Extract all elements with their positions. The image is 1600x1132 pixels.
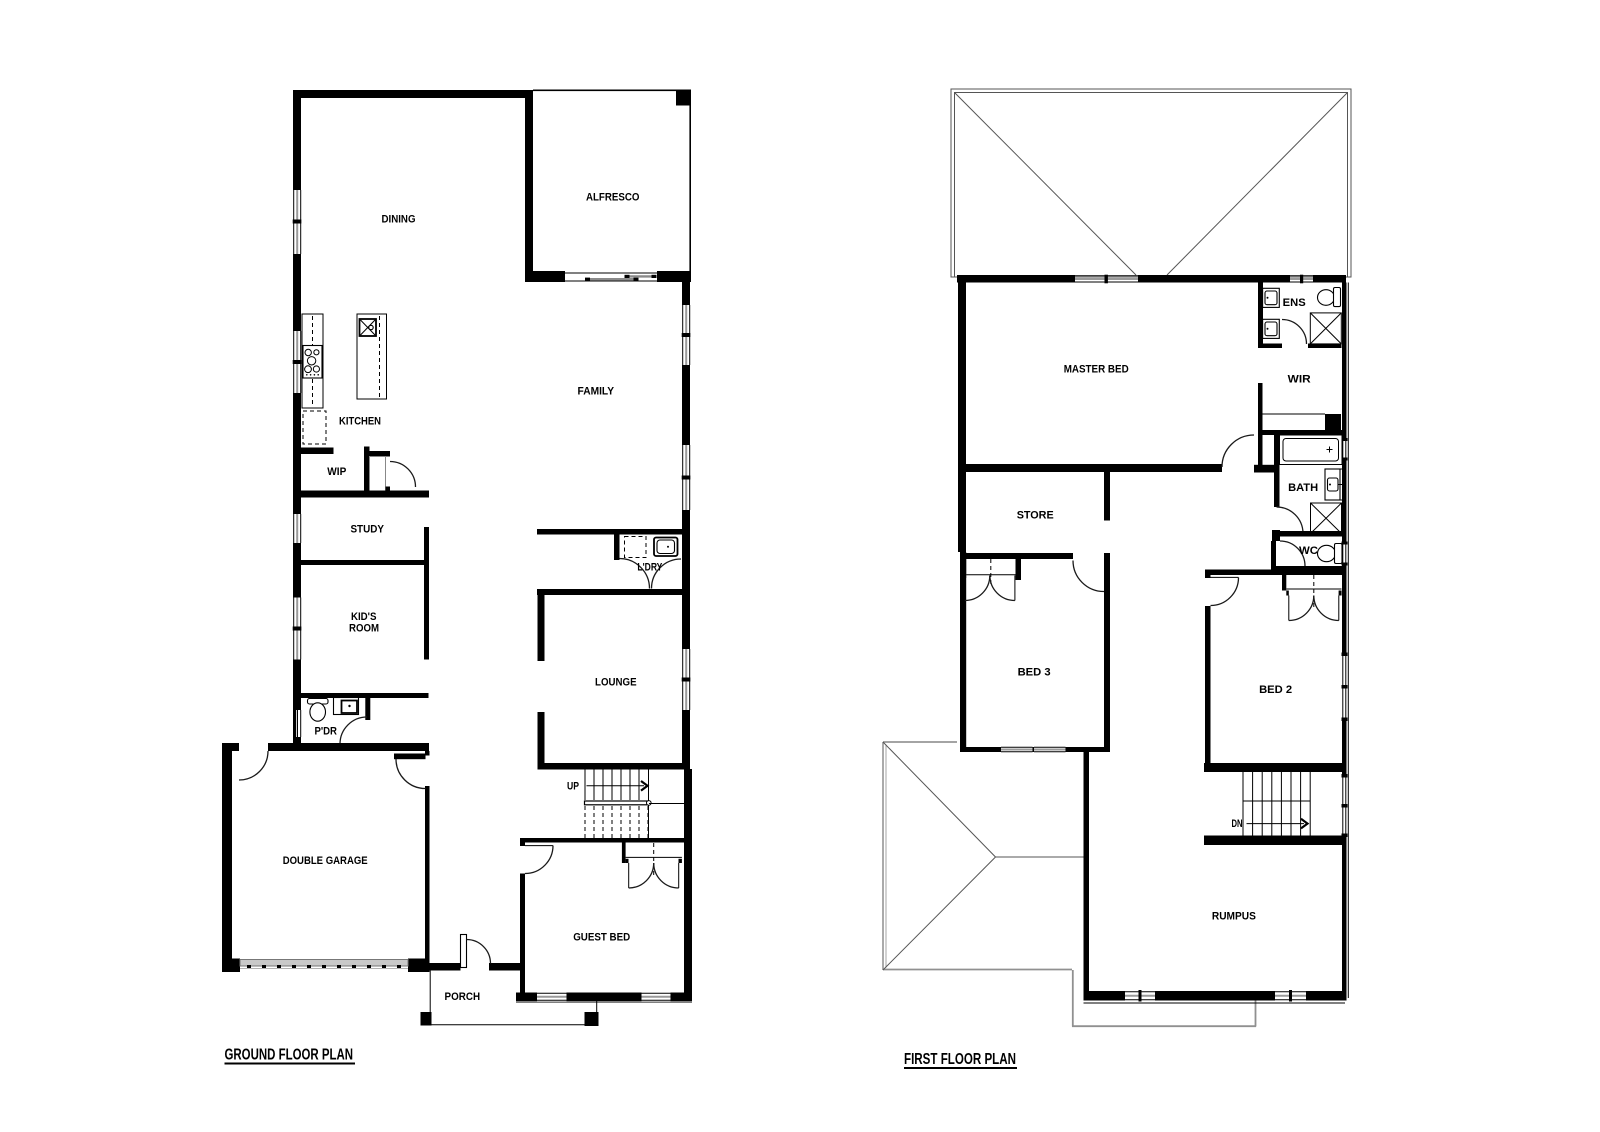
svg-text:RUMPUS: RUMPUS bbox=[1212, 911, 1256, 923]
svg-text:DOUBLE GARAGE: DOUBLE GARAGE bbox=[283, 855, 368, 867]
svg-text:BED 3: BED 3 bbox=[1018, 667, 1051, 679]
svg-text:LOUNGE: LOUNGE bbox=[595, 677, 637, 689]
svg-text:KID'S: KID'S bbox=[351, 611, 377, 623]
svg-text:MASTER BED: MASTER BED bbox=[1064, 364, 1129, 376]
svg-text:WC: WC bbox=[1299, 545, 1318, 557]
svg-text:PORCH: PORCH bbox=[445, 991, 481, 1003]
svg-text:FAMILY: FAMILY bbox=[578, 386, 615, 398]
svg-text:ROOM: ROOM bbox=[349, 623, 379, 635]
svg-text:L'DRY: L'DRY bbox=[637, 562, 663, 574]
svg-text:WIP: WIP bbox=[327, 466, 346, 478]
svg-text:P'DR: P'DR bbox=[314, 726, 337, 738]
svg-text:WIR: WIR bbox=[1288, 374, 1311, 386]
svg-text:GUEST BED: GUEST BED bbox=[573, 932, 630, 944]
svg-text:UP: UP bbox=[567, 781, 579, 793]
svg-text:GROUND FLOOR PLAN: GROUND FLOOR PLAN bbox=[225, 1047, 354, 1064]
svg-text:DN: DN bbox=[1232, 818, 1243, 830]
svg-text:BATH: BATH bbox=[1288, 482, 1318, 494]
svg-text:FIRST FLOOR PLAN: FIRST FLOOR PLAN bbox=[904, 1051, 1016, 1068]
svg-text:ENS: ENS bbox=[1283, 297, 1306, 309]
svg-text:STUDY: STUDY bbox=[350, 524, 384, 536]
svg-text:BED 2: BED 2 bbox=[1259, 684, 1292, 696]
svg-text:STORE: STORE bbox=[1017, 510, 1054, 522]
svg-text:ALFRESCO: ALFRESCO bbox=[586, 192, 640, 204]
svg-text:KITCHEN: KITCHEN bbox=[339, 416, 381, 428]
svg-text:DINING: DINING bbox=[382, 214, 416, 226]
